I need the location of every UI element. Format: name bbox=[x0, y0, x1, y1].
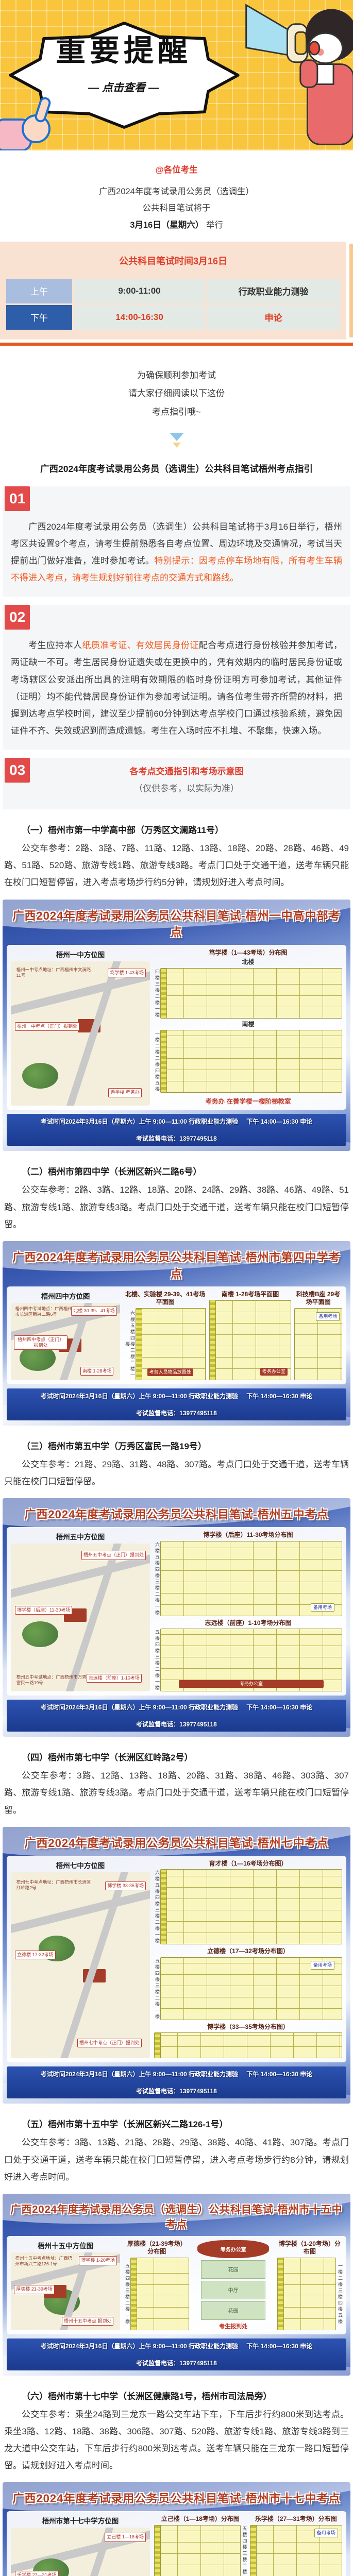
caption-pm: 下午 14:00—16:30 申论 bbox=[246, 2070, 312, 2078]
chart-title: 笃学楼（1—43考场）分布图 bbox=[154, 949, 342, 957]
office-label: 考务办公室 bbox=[197, 2240, 269, 2258]
map-label: 笃学楼 1-43考场 bbox=[108, 969, 146, 977]
mouth-icon bbox=[309, 42, 319, 55]
floor-labels: 五楼四楼三楼二楼一楼 bbox=[154, 1629, 159, 1691]
schedule-card: 公共科目笔试时间3月16日 上午 9:00-11:00 行政职业能力测验 下午 … bbox=[0, 242, 353, 340]
room-label: 备用考场 bbox=[311, 1961, 334, 1970]
site-3-bus-info: 公交车参考：21路、29路、31路、48路、307路。考点门口处于交通干道，送考… bbox=[4, 1456, 349, 1490]
site-5-bus-info: 公交车参考：3路、13路、21路、28路、29路、38路、40路、41路、307… bbox=[4, 2134, 349, 2185]
map-title: 梧州五中方位图 bbox=[11, 1531, 150, 1541]
site-6-poster-image[interactable]: 广西2024年度考试录用公务员公共科目笔试-梧州市十七中考点 梧州市第十七中学方… bbox=[3, 2482, 350, 2576]
floor-labels: 五楼四楼三楼二楼一楼 bbox=[124, 2258, 129, 2330]
campus-map: 梧州五中方位图 梧州五中考试地点：广西梧州市万秀区富民一路19号 梧州五中考点（… bbox=[11, 1531, 150, 1691]
room-label: 考务人员物品放置处 bbox=[147, 1368, 193, 1376]
section-01: 01 广西2024年度考试录用公务员（选调生）公共科目笔试将于3月16日举行，梧… bbox=[3, 486, 350, 597]
down-arrows bbox=[0, 426, 353, 453]
map-label: 梧州七中考点（正门）报到处 bbox=[77, 2039, 142, 2047]
campus-map: 梧州一中方位图 梧州一中考点地址：广西梧州市文澜路11号 笃学楼 1-43考场 … bbox=[11, 949, 150, 1106]
room-label: 考务办公室 bbox=[179, 1680, 324, 1688]
period-cell: 下午 bbox=[6, 305, 72, 330]
map-label: 善学楼 考务办 bbox=[108, 1088, 142, 1097]
garden-label: 花园 bbox=[201, 2301, 265, 2320]
arm-icon bbox=[300, 60, 317, 88]
caption-pm: 下午 14:00—16:30 申论 bbox=[246, 1117, 312, 1126]
chart-title: 志远楼（前座）1-10考场分布图 bbox=[154, 1619, 342, 1628]
checkin-label: 考生报到处 bbox=[219, 2322, 247, 2330]
floor-labels: 六楼五楼四楼三楼二楼一楼 bbox=[154, 1869, 159, 1944]
exam-date: 3月16日（星期六） bbox=[130, 221, 204, 230]
map-label: 厚德楼 21-39考场 bbox=[14, 2285, 55, 2294]
map-note: 梧州四中考试地点：广西梧州市长洲区新兴二路6号 bbox=[15, 1306, 75, 1317]
notice-line3: 考点指引哦~ bbox=[5, 403, 348, 421]
trees-icon bbox=[22, 1621, 58, 1647]
chart-title: 博学楼（1-20考场）分布图 bbox=[277, 2240, 342, 2256]
seat-grid: 备用考场 bbox=[160, 1957, 342, 2020]
center-court: 考务办公室 花园 中厅 花园 考生报到处 bbox=[193, 2240, 273, 2330]
article-page: 重要提醒 — 点击查看 — @各位考生 广西2024年度考试录用公务员（选调生）… bbox=[0, 0, 353, 2576]
chart-title: 育才楼（1—16考场分布图） bbox=[154, 1860, 342, 1868]
subject-cell: 行政职业能力测验 bbox=[207, 279, 340, 303]
seat-grid: 备用考场 bbox=[160, 1541, 342, 1616]
office-note: 考务办 在善学楼一楼阶梯教室 bbox=[154, 1096, 342, 1106]
section-03-number: 03 bbox=[5, 758, 30, 783]
map-label: 立己楼 1—18考场 bbox=[105, 2533, 146, 2541]
time-cell: 9:00-11:00 bbox=[74, 279, 205, 303]
map-label: 梧州五中考点（正门）报到处 bbox=[81, 1551, 146, 1560]
poster-caption: 考试时间2024年3月16日（星期六）上午 9:00—11:00 行政职业能力测… bbox=[7, 1388, 346, 1420]
caption-time: 考试时间2024年3月16日（星期六）上午 9:00—11:00 行政职业能力测… bbox=[41, 1117, 238, 1126]
seat-grid bbox=[277, 2258, 336, 2330]
section-03: 03 各考点交通指引和考场示意图 （仅供参考，以实际为准） bbox=[3, 758, 350, 809]
trees-icon bbox=[22, 1063, 58, 1089]
site-5-heading: （五）梧州市第十五中学（长洲区新兴二路126-1号） bbox=[4, 2117, 349, 2130]
seat-grid bbox=[160, 968, 342, 1019]
section-03-subtitle: （仅供参考，以实际为准） bbox=[30, 781, 343, 799]
map-label: 梧州四中考点（正门）报到处 bbox=[14, 1335, 67, 1350]
site-2-poster-image[interactable]: 广西2024年度考试录用公务员公共科目笔试-梧州市第四中学考点 梧州四中方位图 … bbox=[3, 1241, 350, 1426]
map-label: 博学楼（后座）11-30考场 bbox=[15, 1606, 72, 1615]
caption-pm: 下午 14:00—16:30 申论 bbox=[246, 1703, 312, 1711]
room-label: 备用考场 bbox=[311, 1603, 334, 1612]
seat-grid bbox=[130, 2258, 189, 2330]
site-1-poster-image[interactable]: 广西2024年度考试录用公务员公共科目笔试-梧州一中高中部考点 梧州一中方位图 … bbox=[3, 900, 350, 1151]
map-note: 梧州十五中考点地址：广西梧州市新兴二路126-1号 bbox=[15, 2256, 75, 2267]
poster-title: 广西2024年度考试录用公务员公共科目笔试-梧州市十七中考点 bbox=[7, 2489, 346, 2506]
section-02-text: 考生应持本人纸质准考证、有效居民身份证配合考点进行身份核验并参加考试，两证缺一不… bbox=[11, 637, 342, 739]
seat-grid: 备用考场 bbox=[250, 2525, 342, 2576]
room-label: 考务办公室 bbox=[260, 1368, 288, 1376]
site-6-bus-info: 公交车参考：乘坐24路到三龙东一路公交车站下车，下车后步行约800米到达考点。乘… bbox=[4, 2406, 349, 2475]
notice-line1: 为确保顺利参加考试 bbox=[5, 366, 348, 385]
poster-caption: 考试时间2024年3月16日（星期六）上午 9:00—11:00 行政职业能力测… bbox=[7, 2338, 346, 2370]
map-label: 北楼 30-39、41考场 bbox=[71, 1307, 117, 1315]
pointing-hand-icon bbox=[0, 89, 67, 150]
seat-grid bbox=[160, 1869, 342, 1944]
section-03-title: 各考点交通指引和考场示意图 bbox=[30, 764, 343, 777]
chart-title: 南楼 1-28考场平面图 bbox=[209, 1291, 291, 1299]
caption-tel: 考试监督电话：13977495118 bbox=[136, 2087, 217, 2095]
poster-title: 广西2024年度考试录用公务员公共科目笔试-梧州市第四中学考点 bbox=[7, 1248, 346, 1281]
hall-label: 中厅 bbox=[201, 2281, 265, 2299]
schedule-title: 公共科目笔试时间3月16日 bbox=[6, 254, 340, 267]
caption-tel: 考试监督电话：13977495118 bbox=[136, 2359, 217, 2367]
map-title: 梧州十五中方位图 bbox=[11, 2240, 120, 2250]
chart-title: 博学楼（后座）11-30考场分布图 bbox=[154, 1531, 342, 1539]
caption-time: 考试时间2024年3月16日（星期六）上午 9:00—11:00 行政职业能力测… bbox=[41, 2342, 238, 2350]
floor-labels: 四楼三楼二楼一楼 bbox=[154, 968, 159, 1019]
site-3-heading: （三）梧州市第五中学（万秀区富民一路19号） bbox=[4, 1439, 349, 1452]
site-3-poster-image[interactable]: 广西2024年度考试录用公务员公共科目笔试-梧州五中考点 梧州五中方位图 梧州五… bbox=[3, 1498, 350, 1737]
section-02: 02 考生应持本人纸质准考证、有效居民身份证配合考点进行身份核验并参加考试，两证… bbox=[3, 605, 350, 750]
caption-time: 考试时间2024年3月16日（星期六）上午 9:00—11:00 行政职业能力测… bbox=[41, 1392, 238, 1400]
room-label: 备用考场 bbox=[316, 1312, 340, 1321]
chart-title: 博学楼（33—35考场分布图） bbox=[154, 2023, 342, 2031]
campus-map: 梧州七中方位图 梧州七中考点地址：广西梧州市长洲区红岭路2号 博学楼 33-35… bbox=[11, 1860, 150, 2059]
site-4-bus-info: 公交车参考：3路、12路、13路、18路、20路、31路、38路、46路、303… bbox=[4, 1767, 349, 1818]
caption-tel: 考试监督电话：13977495118 bbox=[136, 1134, 217, 1143]
caption-time: 考试时间2024年3月16日（星期六）上午 9:00—11:00 行政职业能力测… bbox=[41, 1703, 238, 1711]
chart-title: 乐学楼（27—31考场）分布图 bbox=[250, 2515, 342, 2523]
section-02-highlight: 纸质准考证、有效居民身份证 bbox=[82, 640, 198, 650]
megaphone-person-illustration bbox=[240, 0, 353, 150]
room-label: 备用考场 bbox=[314, 2529, 338, 2537]
time-cell: 14:00-16:30 bbox=[74, 305, 205, 330]
poster-caption: 考试时间2024年3月16日（星期六）上午 9:00—11:00 行政职业能力测… bbox=[7, 2066, 346, 2098]
guide-title: 广西2024年度考试录用公务员（选调生）公共科目笔试梧州考点指引 bbox=[0, 453, 353, 478]
seat-grid: 考务办公室 bbox=[160, 1629, 342, 1691]
poster-caption: 考试时间2024年3月16日（星期六）上午 9:00—11:00 行政职业能力测… bbox=[7, 1700, 346, 1732]
map-title: 梧州一中方位图 bbox=[11, 949, 150, 959]
banner-title: 重要提醒 bbox=[21, 36, 227, 66]
poster-title: 广西2024年度考试录用公务员（选调生）公共科目笔试-梧州市十五中考点 bbox=[7, 2201, 346, 2231]
building-icon bbox=[78, 1019, 100, 1032]
site-2-bus-info: 公交车参考：2路、3路、12路、18路、20路、24路、29路、38路、46路、… bbox=[4, 1181, 349, 1232]
site-5-poster-image[interactable]: 广西2024年度考试录用公务员（选调生）公共科目笔试-梧州市十五中考点 梧州十五… bbox=[3, 2194, 350, 2376]
intro-line2: 公共科目笔试将于 bbox=[5, 200, 348, 216]
chart-title: 北楼、实验楼 29-39、41考场平面图 bbox=[124, 1291, 206, 1307]
down-arrow-icon bbox=[170, 433, 184, 441]
caption-time: 考试时间2024年3月16日（星期六）上午 9:00—11:00 行政职业能力测… bbox=[41, 2070, 238, 2078]
caption-pm: 下午 14:00—16:30 申论 bbox=[246, 2342, 312, 2350]
map-title: 梧州市第十七中学方位图 bbox=[11, 2515, 150, 2526]
floor-labels: 五楼四楼三楼二楼一楼 bbox=[154, 1957, 159, 2020]
seat-grid: 备用考场 bbox=[294, 1308, 342, 1380]
schedule-row-pm: 下午 14:00-16:30 申论 bbox=[6, 305, 340, 330]
period-cell: 上午 bbox=[6, 279, 72, 303]
caption-tel: 考试监督电话：13977495118 bbox=[136, 1409, 217, 1417]
campus-map: 梧州市第十七中学方位图 立己楼 1—18考场 乐学楼 27—31考场 十七中考点… bbox=[11, 2515, 150, 2576]
garden-label: 花园 bbox=[201, 2260, 265, 2279]
site-1-bus-info: 公交车参考：2路、3路、7路、11路、12路、13路、18路、20路、28路、4… bbox=[4, 840, 349, 891]
seat-grid: 考务人员物品放置处 bbox=[136, 1308, 206, 1380]
exam-date-rest: 举行 bbox=[206, 221, 223, 230]
map-label: 博学楼 33-35考场 bbox=[105, 1882, 146, 1890]
notice-line2: 请大家仔细阅读以下这份 bbox=[5, 384, 348, 403]
wing-label: 北楼 bbox=[154, 958, 342, 967]
site-2-heading: （二）梧州市第四中学（长洲区新兴二路6号） bbox=[4, 1164, 349, 1177]
building-icon bbox=[83, 1969, 106, 1982]
intro-line1: 广西2024年度考试录用公务员（选调生） bbox=[5, 183, 348, 200]
map-label: 南楼 1-28考场 bbox=[80, 1367, 114, 1376]
section-02-p2: 配合考点进行身份核验并参加考试，两证缺一不可。考生居民身份证遗失或在更换中的，凭… bbox=[11, 640, 342, 736]
seat-grid bbox=[154, 2525, 241, 2576]
poster-title: 广西2024年度考试录用公务员公共科目笔试-梧州五中考点 bbox=[7, 1505, 346, 1522]
seat-grid bbox=[154, 2032, 342, 2058]
caption-tel: 考试监督电话：13977495118 bbox=[136, 1720, 217, 1728]
map-label: 立德楼 17-32考场 bbox=[15, 1951, 56, 1959]
map-note: 梧州一中考点地址：广西梧州市文澜路11号 bbox=[16, 967, 93, 978]
chart-title: 厚德楼（21-39考场）分布图 bbox=[124, 2240, 189, 2256]
subject-cell: 申论 bbox=[207, 305, 340, 330]
map-note: 梧州五中考试地点：广西梧州市万秀区富民一路19号 bbox=[16, 1674, 93, 1686]
intro-date-line: 3月16日（星期六） 举行 bbox=[5, 217, 348, 233]
section-02-p1: 考生应持本人 bbox=[28, 640, 82, 650]
site-4-heading: （四）梧州市第七中学（长洲区红岭路2号） bbox=[4, 1750, 349, 1763]
poster-title: 广西2024年度考试录用公务员公共科目笔试-梧州七中考点 bbox=[7, 1834, 346, 1851]
floor-labels: 六楼五楼四楼三楼二楼一楼 bbox=[154, 1541, 159, 1616]
campus-map: 梧州四中方位图 梧州四中考试地点：广西梧州市长洲区新兴二路6号 北楼 30-39… bbox=[11, 1291, 120, 1380]
wing-label: 南楼 bbox=[154, 1021, 342, 1029]
floor-labels: 五楼四楼三楼二楼一楼 bbox=[242, 2525, 247, 2576]
map-title: 梧州四中方位图 bbox=[11, 1291, 120, 1301]
map-label: 博学楼 1-20考场 bbox=[79, 2256, 117, 2265]
poster-caption: 考试时间2024年3月16日（星期六）上午 9:00—11:00 行政职业能力测… bbox=[7, 1114, 346, 1146]
map-label: 梧州一中考点（正门）报到处 bbox=[15, 1022, 79, 1031]
site-4-poster-image[interactable]: 广西2024年度考试录用公务员公共科目笔试-梧州七中考点 梧州七中方位图 梧州七… bbox=[3, 1827, 350, 2104]
site-6-heading: （六）梧州市第十七中学（长洲区健康路1号，梧州市司法局旁） bbox=[4, 2389, 349, 2402]
intro-block: @各位考生 广西2024年度考试录用公务员（选调生） 公共科目笔试将于 3月16… bbox=[0, 150, 353, 236]
section-01-number: 01 bbox=[5, 486, 30, 511]
chart-title: 立己楼（1—18考场）分布图 bbox=[154, 2515, 246, 2523]
site-1-heading: （一）梧州市第一中学高中部（万秀区文澜路11号） bbox=[4, 823, 349, 836]
chart-title: 立德楼（17—32考场分布图） bbox=[154, 1947, 342, 1956]
notice-block: 为确保顺利参加考试 请大家仔细阅读以下这份 考点指引哦~ bbox=[0, 346, 353, 426]
map-note: 梧州七中考点地址：广西梧州市长洲区红岭路2号 bbox=[16, 1879, 93, 1891]
poster-title: 广西2024年度考试录用公务员公共科目笔试-梧州一中高中部考点 bbox=[7, 907, 346, 940]
map-title: 梧州七中方位图 bbox=[11, 1860, 150, 1870]
floor-labels: 一楼二楼三楼四楼五楼 bbox=[154, 1030, 159, 1093]
caption-pm: 下午 14:00—16:30 申论 bbox=[246, 1392, 312, 1400]
seat-grid: 考务办公室 bbox=[209, 1300, 291, 1380]
megaphone-cone-icon bbox=[246, 5, 289, 55]
banner-image[interactable]: 重要提醒 — 点击查看 — bbox=[0, 0, 353, 150]
map-label: 梧州十五中考点 报到处 bbox=[62, 2317, 114, 2326]
section-01-text: 广西2024年度考试录用公务员（选调生）公共科目笔试将于3月16日举行，梧州考区… bbox=[11, 518, 342, 587]
schedule-row-am: 上午 9:00-11:00 行政职业能力测验 bbox=[6, 279, 340, 303]
section-02-number: 02 bbox=[5, 605, 30, 630]
chart-title: 科技楼B座 29考场平面图 bbox=[294, 1291, 342, 1307]
floor-labels: 六楼五楼四楼三楼二楼一楼 bbox=[124, 1308, 135, 1380]
map-label: 志远楼（前座）1-10考场 bbox=[87, 1674, 142, 1683]
intro-at: @各位考生 bbox=[5, 162, 348, 178]
campus-map: 梧州十五中方位图 梧州十五中考点地址：广西梧州市新兴二路126-1号 博学楼 1… bbox=[11, 2240, 120, 2330]
floor-labels: 一楼二楼三楼四楼五楼 bbox=[337, 2258, 342, 2330]
seat-grid bbox=[160, 1030, 342, 1093]
down-arrow-small-icon bbox=[173, 443, 181, 448]
map-label: 乐学楼 27—31考场 bbox=[15, 2571, 59, 2576]
